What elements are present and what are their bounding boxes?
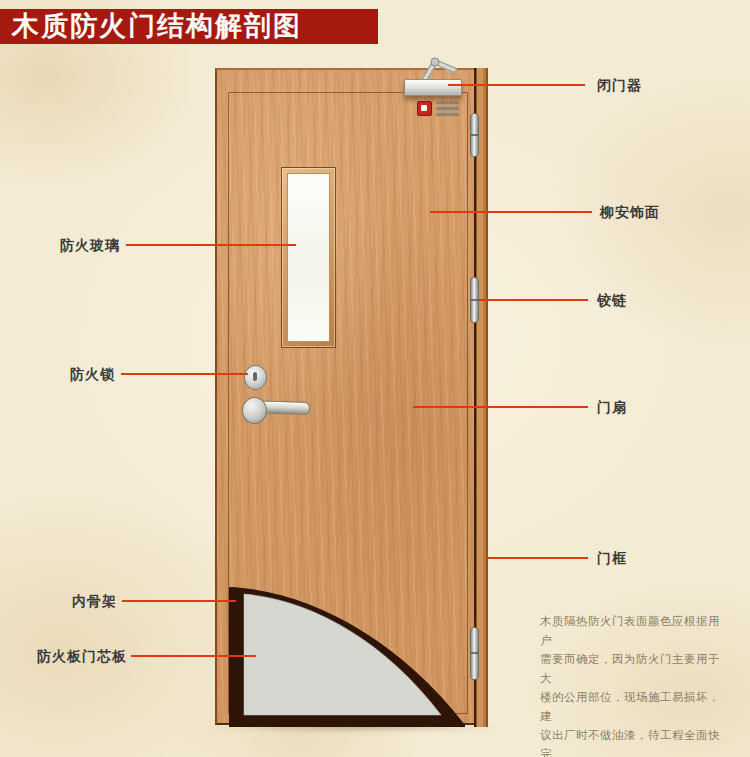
leader-line [430, 211, 592, 213]
glass-window [281, 167, 336, 348]
page: { "title": "木质防火门结构解剖图", "labels": { "le… [0, 0, 750, 757]
door-diagram [215, 68, 488, 727]
leader-line [122, 600, 236, 602]
core-panel-region [244, 594, 441, 715]
title-banner: 木质防火门结构解剖图 [0, 9, 378, 44]
label-door-frame: 门框 [597, 550, 627, 568]
label-inner-skeleton: 内骨架 [0, 593, 117, 611]
label-fire-lock: 防火锁 [0, 366, 115, 384]
hinge-bottom [470, 627, 479, 680]
door-handle-rosette [242, 397, 267, 424]
label-door-leaf: 门扇 [597, 399, 627, 417]
leader-line [126, 244, 296, 246]
hinge-top [470, 113, 479, 157]
vent-plate [436, 101, 459, 117]
label-fire-board-core: 防火板门芯板 [0, 648, 127, 666]
description-line: 议出厂时不做油漆，待工程全面快完 [540, 726, 730, 757]
description-line: 木质隔热防火门表面颜色应根据用户 [540, 612, 730, 650]
label-door-closer: 闭门器 [597, 77, 642, 95]
alarm-indicator-dot [421, 105, 427, 111]
description-text: 木质隔热防火门表面颜色应根据用户 需要而确定，因为防火门主要用于大 楼的公用部位… [540, 612, 730, 757]
description-line: 楼的公用部位，现场施工易损坏，建 [540, 688, 730, 726]
leader-line [131, 655, 256, 657]
fire-glass-pane [287, 173, 330, 342]
description-line: 需要而确定，因为防火门主要用于大 [540, 650, 730, 688]
door-closer [404, 79, 462, 96]
keyhole-icon [253, 372, 257, 381]
cutaway-section [217, 575, 476, 727]
hinge-middle [470, 277, 479, 323]
label-hinge: 铰链 [597, 292, 627, 310]
label-lauan-veneer: 柳安饰面 [600, 204, 660, 222]
door-leaf [215, 68, 474, 725]
leader-line [479, 299, 588, 301]
leader-line [121, 373, 248, 375]
label-fire-glass: 防火玻璃 [0, 237, 120, 255]
leader-line [413, 406, 588, 408]
leader-line [448, 84, 585, 86]
fire-lock-cylinder [244, 365, 267, 390]
alarm-indicator [417, 101, 432, 116]
leader-line [487, 557, 588, 559]
